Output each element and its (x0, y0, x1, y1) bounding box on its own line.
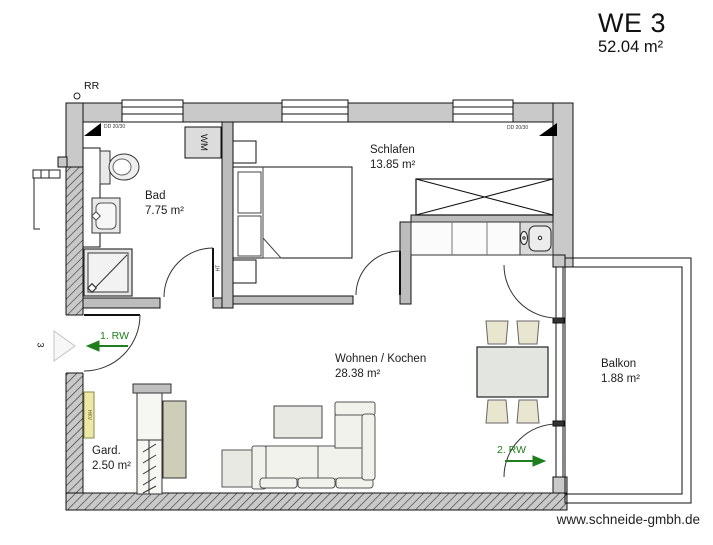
room-label-gard: Gard. 2.50 m² (92, 444, 131, 473)
window-icon (122, 100, 183, 122)
room-area: 13.85 m² (370, 158, 415, 173)
kitchen-sink-icon (520, 222, 553, 255)
window-icon (282, 100, 348, 122)
exterior-attachment (33, 170, 60, 229)
top-windows (122, 100, 513, 122)
ht-text: HT (215, 265, 221, 272)
room-label-bad: Bad 7.75 m² (145, 189, 184, 218)
hkv-label: HKV (84, 392, 94, 438)
escape-arrow-1-icon (87, 341, 128, 351)
room-area: 7.75 m² (145, 204, 184, 219)
kitchen-counter-icon (411, 222, 553, 255)
room-area: 1.88 m² (601, 372, 640, 387)
room-area: 2.50 m² (92, 459, 131, 474)
floorplan-page: WE 3 52.04 m² RR DD 20/30 DD 20/30 Bad 7… (0, 0, 713, 545)
toilet-icon (100, 151, 139, 184)
dd-marker-left-icon (84, 123, 101, 136)
escape-route-1-label: 1. RW (100, 330, 129, 342)
entrance-number-text: 3 (36, 342, 46, 347)
bed-icon (233, 141, 352, 283)
nightstand (233, 141, 256, 163)
dining-table-icon (477, 347, 548, 397)
room-name: Schlafen (370, 143, 415, 158)
room-name: Wohnen / Kochen (335, 352, 426, 367)
room-name: Gard. (92, 444, 131, 459)
rr-label: RR (84, 80, 99, 92)
dining-set (477, 321, 548, 423)
room-label-schlafen: Schlafen 13.85 m² (370, 143, 415, 172)
room-label-balkon: Balkon 1.88 m² (601, 357, 640, 386)
escape-arrow-2-icon (505, 456, 545, 466)
washing-machine-label: WM (185, 127, 221, 158)
wardrobe-x-icon (416, 179, 553, 215)
entrance-number-label: 3 (34, 336, 48, 354)
shower-icon (84, 249, 132, 296)
balcony-glazing (553, 267, 564, 477)
window-icon (453, 100, 513, 122)
dd-label-right: DD 20/30 (507, 125, 528, 131)
room-label-wohnen: Wohnen / Kochen 28.38 m² (335, 352, 426, 381)
entry-door-arc (84, 315, 140, 371)
nightstand (233, 260, 256, 283)
escape-route-2-label: 2. RW (497, 444, 526, 456)
dd-label-left: DD 20/30 (104, 124, 125, 130)
coffee-table-icon (274, 406, 322, 438)
gard-wardrobe-icon (133, 384, 186, 494)
bath-door-arc (164, 248, 213, 297)
apartment-area: 52.04 m² (598, 38, 663, 57)
room-area: 28.38 m² (335, 367, 426, 382)
bathroom-sink-icon (92, 198, 120, 233)
bedroom-door-arc (356, 251, 400, 295)
room-name: Bad (145, 189, 184, 204)
website-link: www.schneide-gmbh.de (430, 512, 700, 527)
armchair-icon (222, 450, 252, 487)
hkv-text: HKV (86, 410, 92, 420)
rr-pipe-icon (74, 93, 80, 99)
room-name: Balkon (601, 357, 640, 372)
wm-text: WM (197, 134, 208, 151)
door-type-label: HT (213, 250, 223, 286)
apartment-title: WE 3 (598, 8, 666, 39)
balcony-door-arc-upper (504, 265, 557, 318)
